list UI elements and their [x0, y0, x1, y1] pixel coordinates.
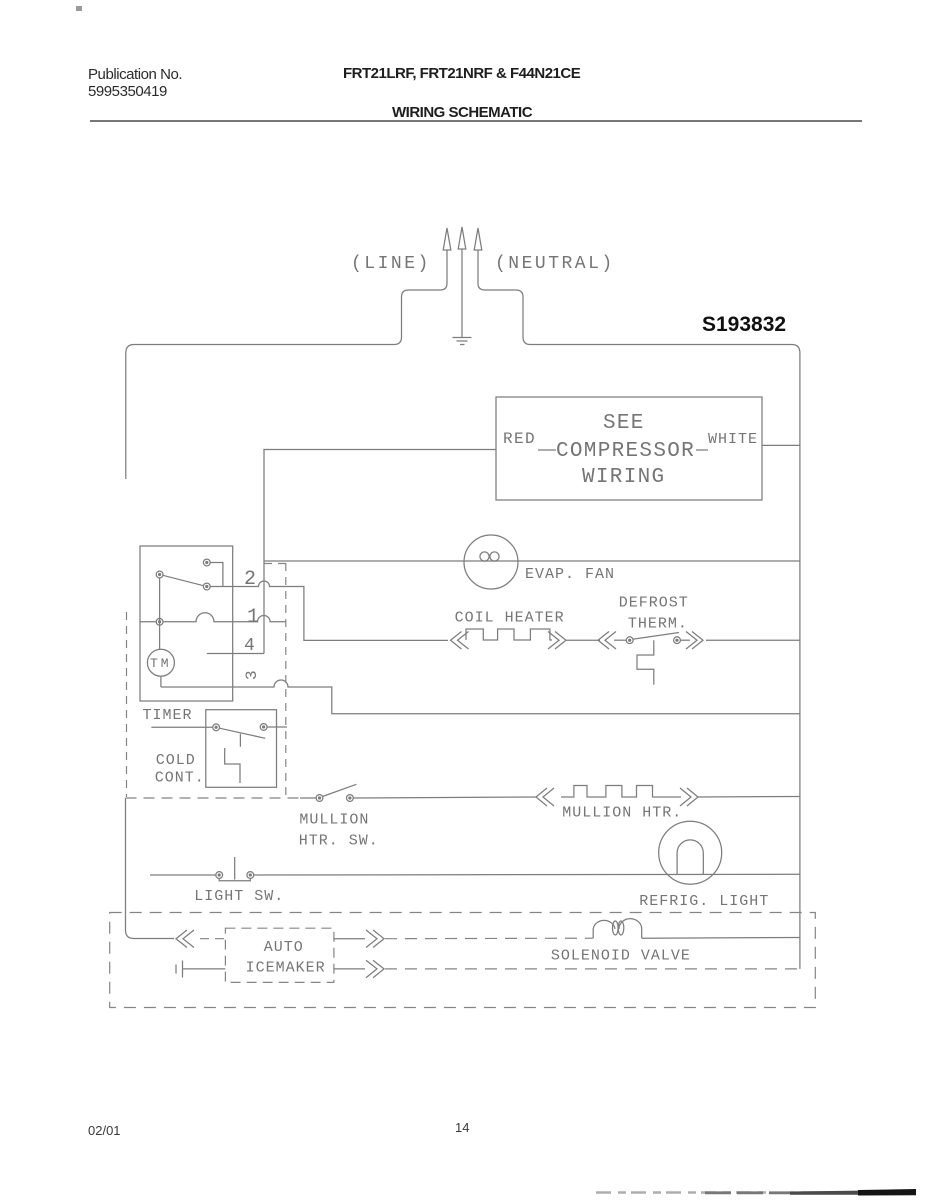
- svg-text:TIMER: TIMER: [143, 707, 193, 724]
- svg-text:WIRING SCHEMATIC: WIRING SCHEMATIC: [392, 104, 533, 121]
- svg-text:1: 1: [247, 606, 260, 629]
- svg-text:SEE: SEE: [603, 412, 645, 435]
- svg-text:COIL HEATER: COIL HEATER: [455, 610, 565, 627]
- svg-text:TM: TM: [150, 656, 172, 671]
- svg-text:ICEMAKER: ICEMAKER: [246, 960, 326, 977]
- svg-text:WIRING: WIRING: [582, 466, 665, 489]
- svg-text:SOLENOID VALVE: SOLENOID VALVE: [551, 948, 691, 965]
- svg-text:CONT.: CONT.: [155, 770, 205, 787]
- svg-text:LIGHT SW.: LIGHT SW.: [194, 888, 284, 905]
- svg-text:FRT21LRF, FRT21NRF & F44N21CE: FRT21LRF, FRT21NRF & F44N21CE: [343, 65, 581, 82]
- svg-text:MULLION HTR.: MULLION HTR.: [562, 805, 682, 822]
- svg-text:2: 2: [244, 568, 257, 591]
- svg-text:MULLION: MULLION: [299, 812, 369, 829]
- svg-text:Publication No.: Publication No.: [88, 66, 182, 83]
- svg-text:S193832: S193832: [702, 313, 786, 336]
- svg-text:HTR. SW.: HTR. SW.: [299, 833, 379, 850]
- svg-text:DEFROST: DEFROST: [619, 595, 689, 612]
- svg-text:THERM.: THERM.: [628, 616, 688, 633]
- svg-text:COLD: COLD: [156, 752, 196, 769]
- svg-text:02/01: 02/01: [88, 1123, 121, 1138]
- svg-text:5995350419: 5995350419: [88, 83, 167, 100]
- svg-text:EVAP. FAN: EVAP. FAN: [525, 566, 615, 583]
- svg-text:(LINE): (LINE): [351, 254, 431, 274]
- svg-text:4: 4: [244, 636, 256, 656]
- svg-text:14: 14: [455, 1120, 469, 1135]
- svg-text:COMPRESSOR: COMPRESSOR: [556, 440, 695, 463]
- svg-text:WHITE: WHITE: [708, 431, 758, 448]
- svg-text:AUTO: AUTO: [264, 939, 304, 956]
- svg-text:(NEUTRAL): (NEUTRAL): [495, 254, 615, 274]
- svg-text:3: 3: [243, 669, 261, 680]
- svg-text:REFRIG. LIGHT: REFRIG. LIGHT: [639, 893, 769, 910]
- svg-text:RED: RED: [503, 430, 536, 448]
